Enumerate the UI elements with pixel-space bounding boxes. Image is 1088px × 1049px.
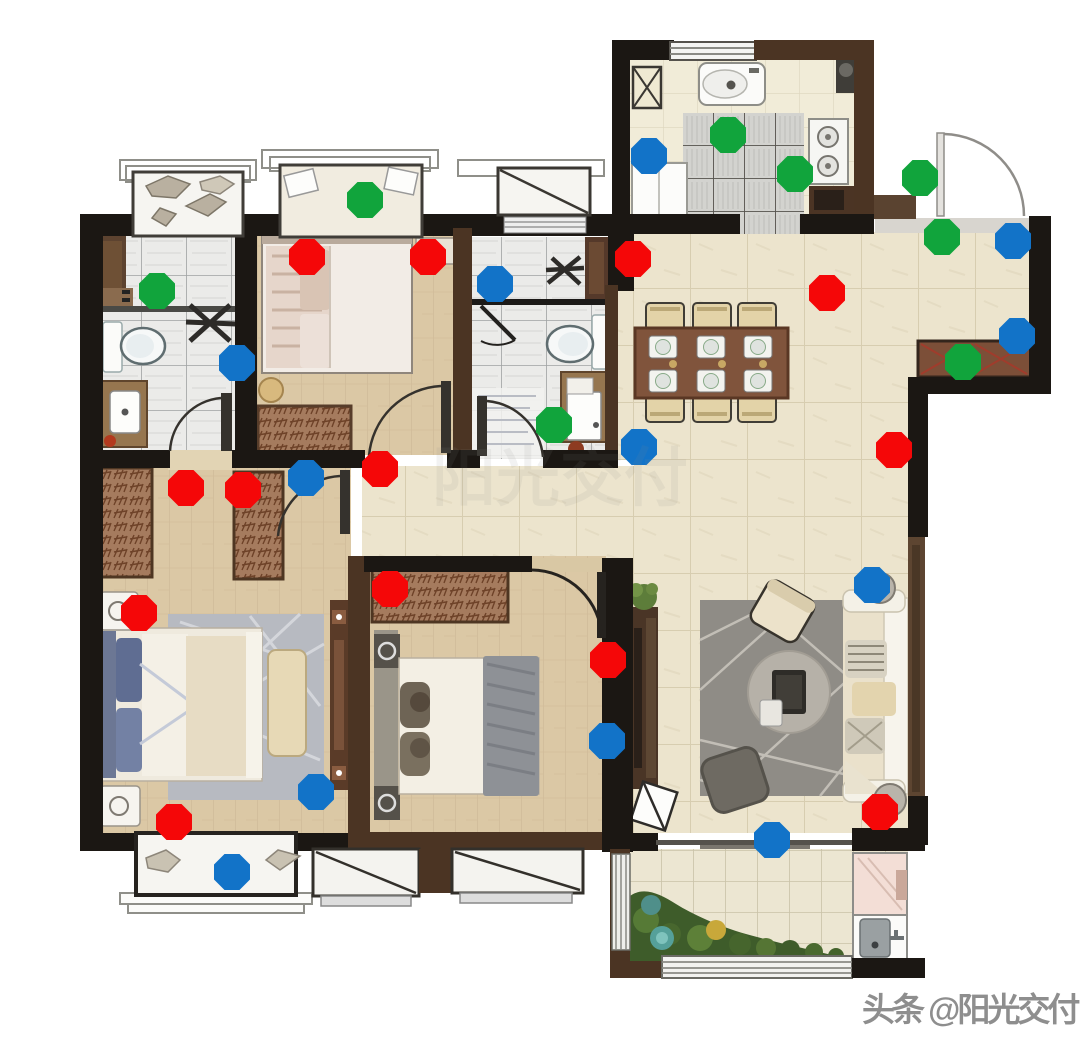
svg-text:阳光交付: 阳光交付: [432, 442, 688, 514]
svg-text:头条 @阳光交付: 头条 @阳光交付: [862, 991, 1080, 1028]
